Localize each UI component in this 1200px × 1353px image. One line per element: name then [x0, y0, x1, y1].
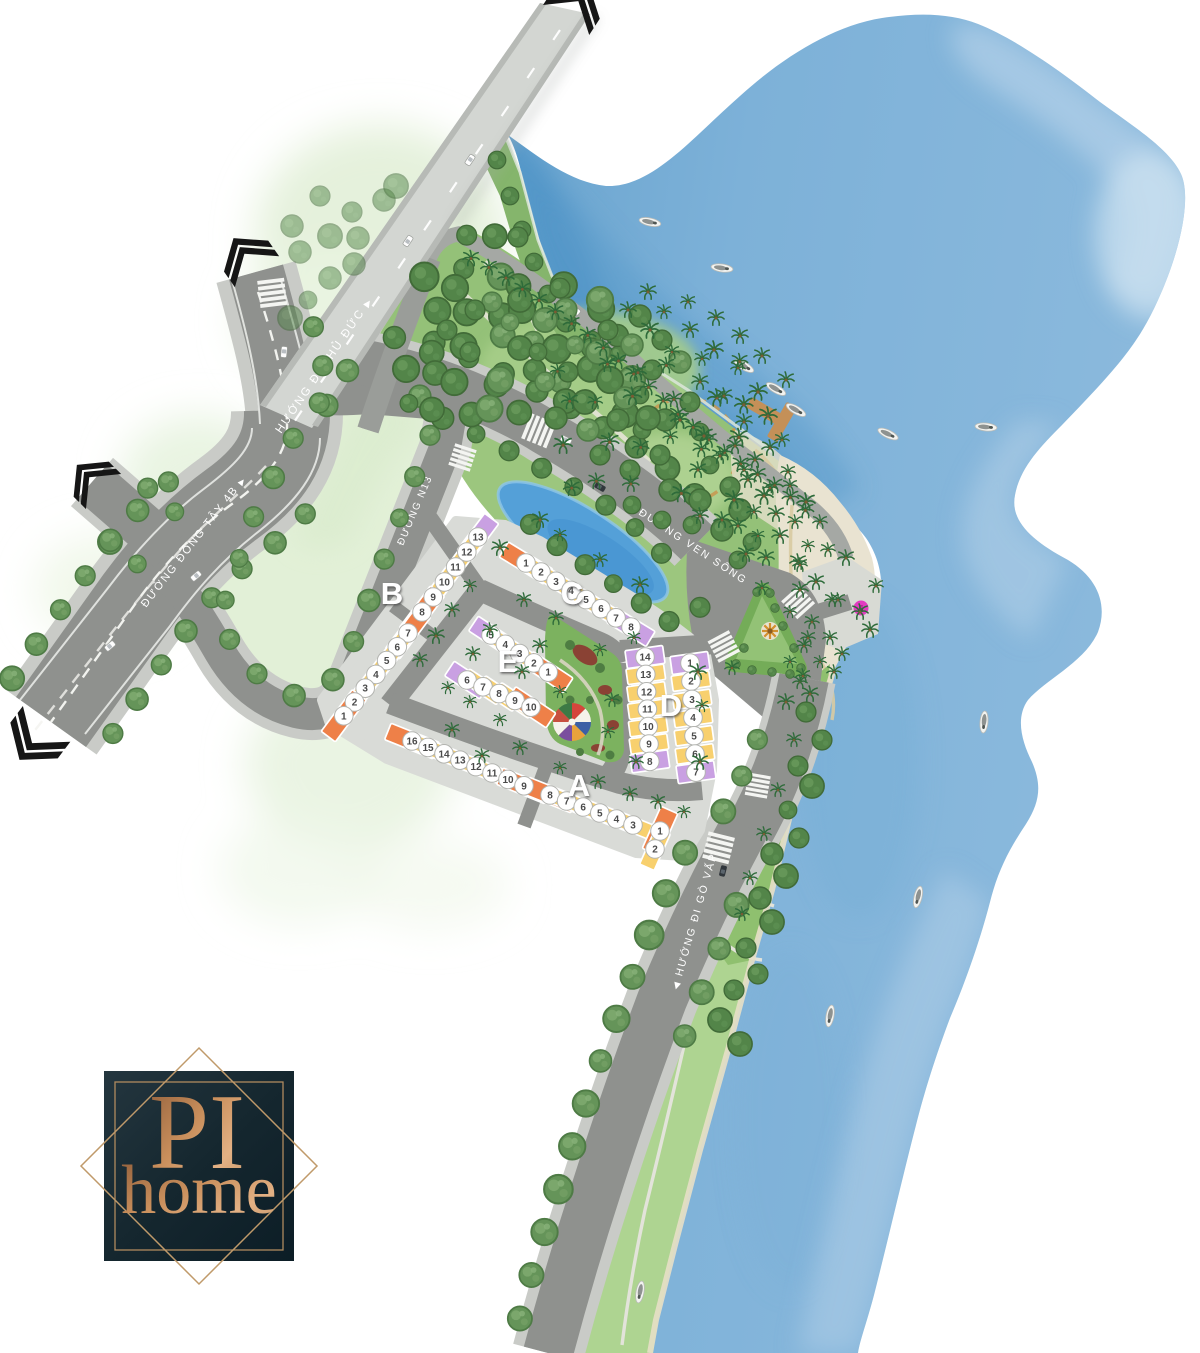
- svg-text:6: 6: [598, 604, 604, 615]
- svg-text:A: A: [568, 768, 590, 803]
- svg-text:3: 3: [689, 695, 695, 706]
- svg-text:11: 11: [450, 563, 461, 574]
- svg-text:9: 9: [512, 696, 518, 707]
- svg-text:B: B: [381, 576, 403, 611]
- svg-text:10: 10: [502, 775, 514, 786]
- svg-text:2: 2: [531, 658, 537, 669]
- svg-text:10: 10: [643, 722, 655, 733]
- svg-text:5: 5: [597, 809, 603, 820]
- svg-text:8: 8: [496, 689, 502, 700]
- svg-text:13: 13: [454, 756, 466, 767]
- svg-text:2: 2: [352, 698, 358, 709]
- svg-text:1: 1: [523, 559, 529, 570]
- svg-text:1: 1: [341, 711, 347, 722]
- svg-text:7: 7: [480, 682, 486, 693]
- svg-text:4: 4: [614, 815, 620, 826]
- svg-text:3: 3: [362, 684, 368, 695]
- svg-text:10: 10: [439, 578, 451, 589]
- svg-text:12: 12: [461, 548, 473, 559]
- svg-text:14: 14: [438, 749, 450, 760]
- svg-text:1: 1: [687, 659, 693, 670]
- svg-text:12: 12: [470, 762, 482, 773]
- svg-text:3: 3: [630, 821, 636, 832]
- svg-text:C: C: [561, 576, 583, 611]
- svg-text:5: 5: [384, 656, 390, 667]
- svg-text:1: 1: [545, 668, 551, 679]
- svg-text:4: 4: [373, 670, 379, 681]
- svg-text:15: 15: [422, 743, 434, 754]
- svg-text:6: 6: [464, 676, 470, 687]
- svg-text:7: 7: [405, 629, 411, 640]
- svg-text:11: 11: [487, 769, 498, 780]
- svg-text:16: 16: [406, 737, 418, 748]
- svg-text:12: 12: [641, 687, 653, 698]
- svg-text:1: 1: [657, 827, 663, 838]
- svg-text:9: 9: [646, 740, 652, 751]
- svg-text:13: 13: [640, 670, 652, 681]
- svg-text:D: D: [660, 688, 682, 723]
- svg-text:7: 7: [613, 613, 619, 624]
- svg-text:8: 8: [647, 757, 653, 768]
- svg-text:14: 14: [639, 653, 651, 664]
- svg-text:6: 6: [580, 803, 586, 814]
- svg-text:E: E: [498, 644, 519, 679]
- svg-text:5: 5: [691, 731, 697, 742]
- svg-text:13: 13: [472, 533, 484, 544]
- svg-text:9: 9: [521, 781, 527, 792]
- svg-text:9: 9: [430, 593, 436, 604]
- svg-text:home: home: [121, 1152, 277, 1229]
- svg-text:6: 6: [395, 642, 401, 653]
- svg-text:2: 2: [652, 845, 658, 856]
- svg-text:3: 3: [553, 577, 559, 588]
- svg-text:5: 5: [583, 595, 589, 606]
- svg-text:2: 2: [688, 677, 694, 688]
- svg-text:2: 2: [538, 568, 544, 579]
- svg-text:11: 11: [642, 705, 653, 716]
- svg-text:10: 10: [525, 703, 537, 714]
- svg-text:8: 8: [419, 608, 425, 619]
- svg-text:4: 4: [690, 713, 696, 724]
- svg-text:8: 8: [547, 791, 553, 802]
